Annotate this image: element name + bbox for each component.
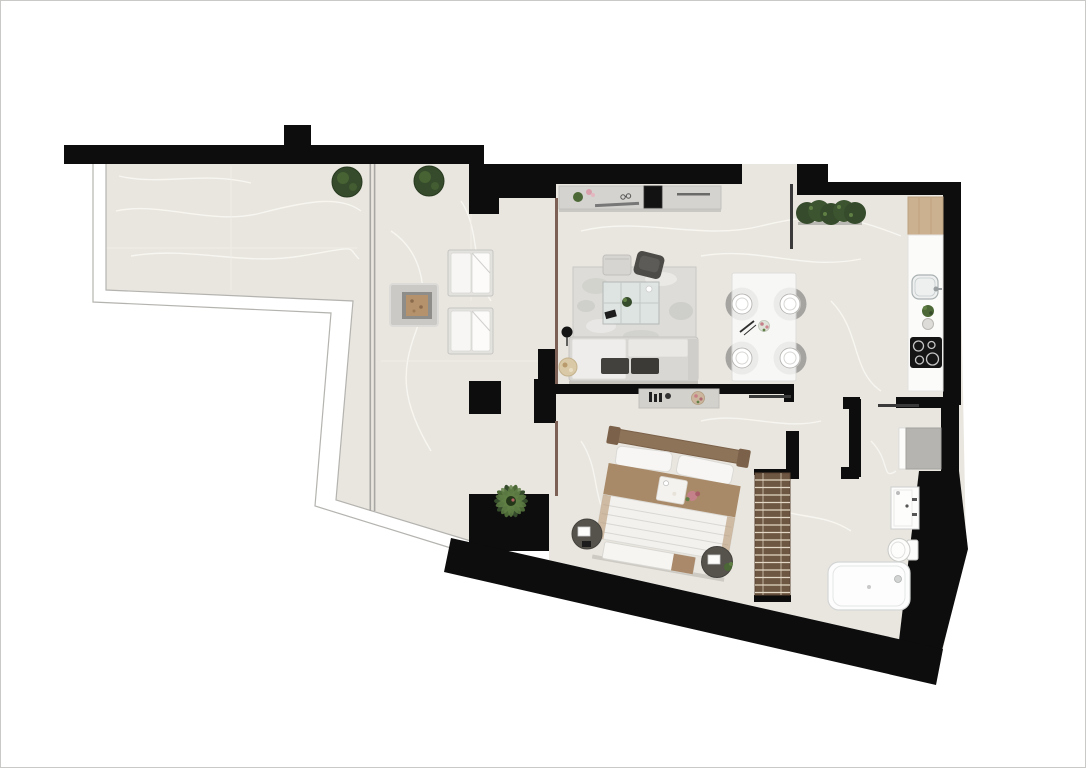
- shower-unit: [899, 428, 941, 469]
- hedge-planter: [796, 200, 866, 225]
- wall-corner-chunk: [469, 164, 499, 214]
- side-table: [559, 358, 577, 376]
- centerpiece: [759, 321, 770, 332]
- dark-cushion-1: [601, 358, 629, 374]
- place-setting-4: [780, 348, 800, 368]
- wall-right-mid: [941, 397, 959, 473]
- glass-divider-terrace-a: [370, 164, 372, 511]
- wardrobe: [755, 473, 790, 595]
- wall-wardrobe-bottom-cap: [754, 595, 791, 602]
- place-setting-3: [732, 348, 752, 368]
- pouf: [603, 255, 631, 275]
- toilet: [888, 539, 918, 562]
- glass-partition-bedroom: [555, 421, 558, 496]
- floor-plan: [0, 0, 1086, 768]
- entry-door: [790, 184, 793, 249]
- dining-area: [726, 273, 807, 381]
- tv: [644, 186, 662, 208]
- coffee-table: [603, 282, 659, 324]
- console-plant: [573, 192, 583, 202]
- lamp-left: [578, 527, 590, 536]
- sun-lounger-1: [448, 250, 493, 296]
- bathroom-door: [878, 404, 919, 407]
- sink: [912, 275, 942, 299]
- wall-hall: [849, 399, 861, 477]
- potted-bush-2: [414, 166, 444, 196]
- wall-top-mid-thick: [499, 164, 556, 198]
- potted-bush-1: [332, 167, 362, 197]
- lamp-right: [708, 555, 720, 564]
- glass-partition-living: [555, 198, 558, 384]
- wall-hall-cap: [841, 467, 859, 479]
- wall-terrace-top: [64, 145, 484, 164]
- wall-right-upper: [943, 195, 961, 405]
- coffee-table-plant: [622, 297, 632, 307]
- bedroom-door: [749, 395, 791, 398]
- wall-shelf: [677, 193, 710, 196]
- wall-living-left-b: [534, 379, 556, 423]
- fire-pit-table: [390, 284, 438, 326]
- breakfast-tray: [656, 476, 688, 504]
- wall-living-left-a: [538, 349, 556, 381]
- wall-wardrobe-side: [786, 431, 799, 479]
- glass-divider-terrace-b: [374, 164, 376, 511]
- place-setting-2: [780, 294, 800, 314]
- cooktop: [910, 337, 942, 368]
- dark-cushion-2: [631, 358, 659, 374]
- sun-lounger-2: [448, 308, 493, 354]
- entry-doorway-floor: [741, 164, 797, 186]
- decor-bowl: [692, 392, 705, 405]
- tub-faucet: [895, 576, 902, 583]
- jar: [923, 319, 934, 330]
- dish: [646, 286, 652, 292]
- dresser-console: [639, 389, 719, 408]
- media-console: [559, 186, 721, 212]
- nightstand-right: [702, 547, 734, 578]
- wall-top-right-bar: [797, 182, 961, 195]
- sofa: [569, 337, 698, 384]
- place-setting-1: [732, 294, 752, 314]
- wall-terrace-pillar: [469, 381, 501, 414]
- herb-plant: [922, 305, 934, 317]
- wood-countertop: [908, 197, 943, 235]
- vanity-sink: [891, 487, 919, 529]
- nightstand-left: [572, 519, 602, 549]
- wall-terrace-bump: [284, 125, 311, 146]
- wall-entry-block: [797, 164, 828, 183]
- bathtub: [828, 562, 910, 610]
- wall-top-mid: [556, 164, 742, 184]
